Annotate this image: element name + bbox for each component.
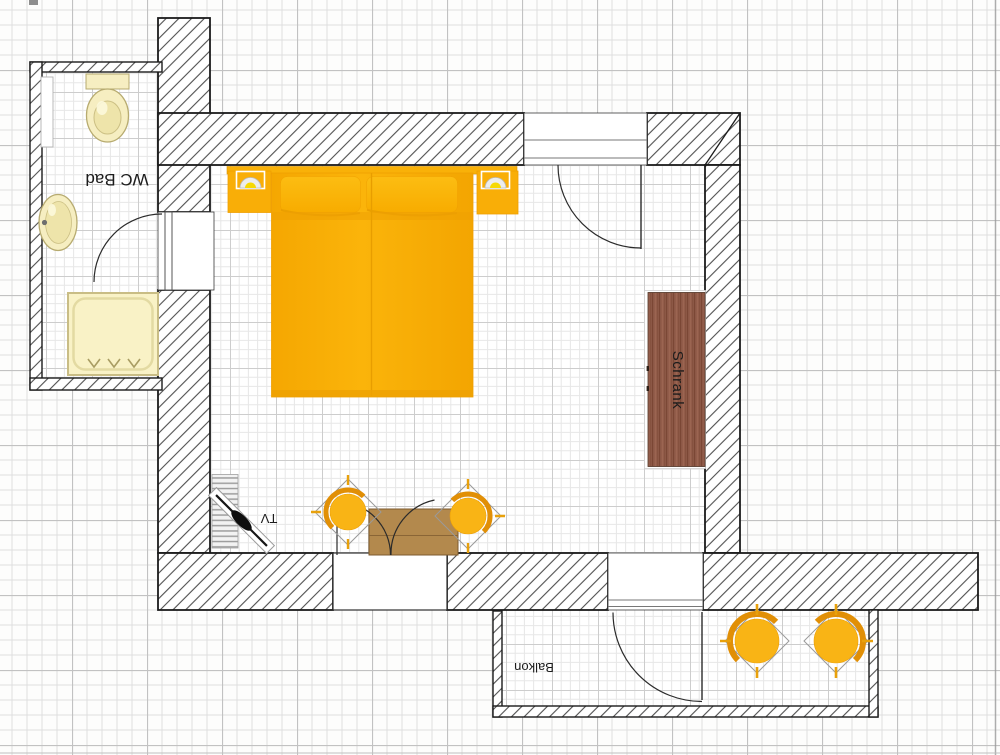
entrance-door-opening — [524, 113, 647, 165]
wall-right — [705, 165, 740, 553]
window-opening — [333, 553, 447, 610]
bathroom-door-leaf — [165, 212, 172, 290]
wall-bottom-left — [158, 553, 333, 610]
wall-balcony-right — [869, 610, 878, 717]
toilet — [86, 74, 129, 142]
wall-balcony-bottom — [493, 706, 878, 717]
shower — [68, 293, 158, 375]
wardrobe-handle — [647, 366, 649, 371]
wardrobe-body — [648, 293, 705, 467]
wall-bathroom-bottom — [30, 378, 162, 390]
wall-balcony-left — [493, 611, 502, 717]
sink — [39, 195, 77, 251]
bed-pillow-left — [281, 177, 361, 213]
wall-top-right — [647, 113, 740, 165]
floorplan-canvas: WC Bad Schrank TV Balkon — [0, 0, 1000, 755]
table-top — [369, 509, 458, 555]
radiator — [41, 77, 53, 147]
balcony-door-opening — [608, 553, 703, 610]
wall-left-lower — [158, 290, 210, 553]
wardrobe-handle — [647, 386, 649, 391]
wall-bottom-right — [703, 553, 978, 610]
blanket-fold — [272, 212, 474, 220]
wall-bottom-middle — [447, 553, 608, 610]
balcony-floor — [502, 610, 869, 706]
sink-faucet — [42, 220, 47, 225]
floorplan-drawing — [0, 0, 1000, 755]
bed-foot-edge — [272, 390, 474, 397]
bed-pillow-right — [367, 177, 458, 213]
wardrobe — [645, 291, 706, 469]
wall-bathroom-top — [30, 62, 162, 72]
wall-top-left — [158, 113, 524, 165]
